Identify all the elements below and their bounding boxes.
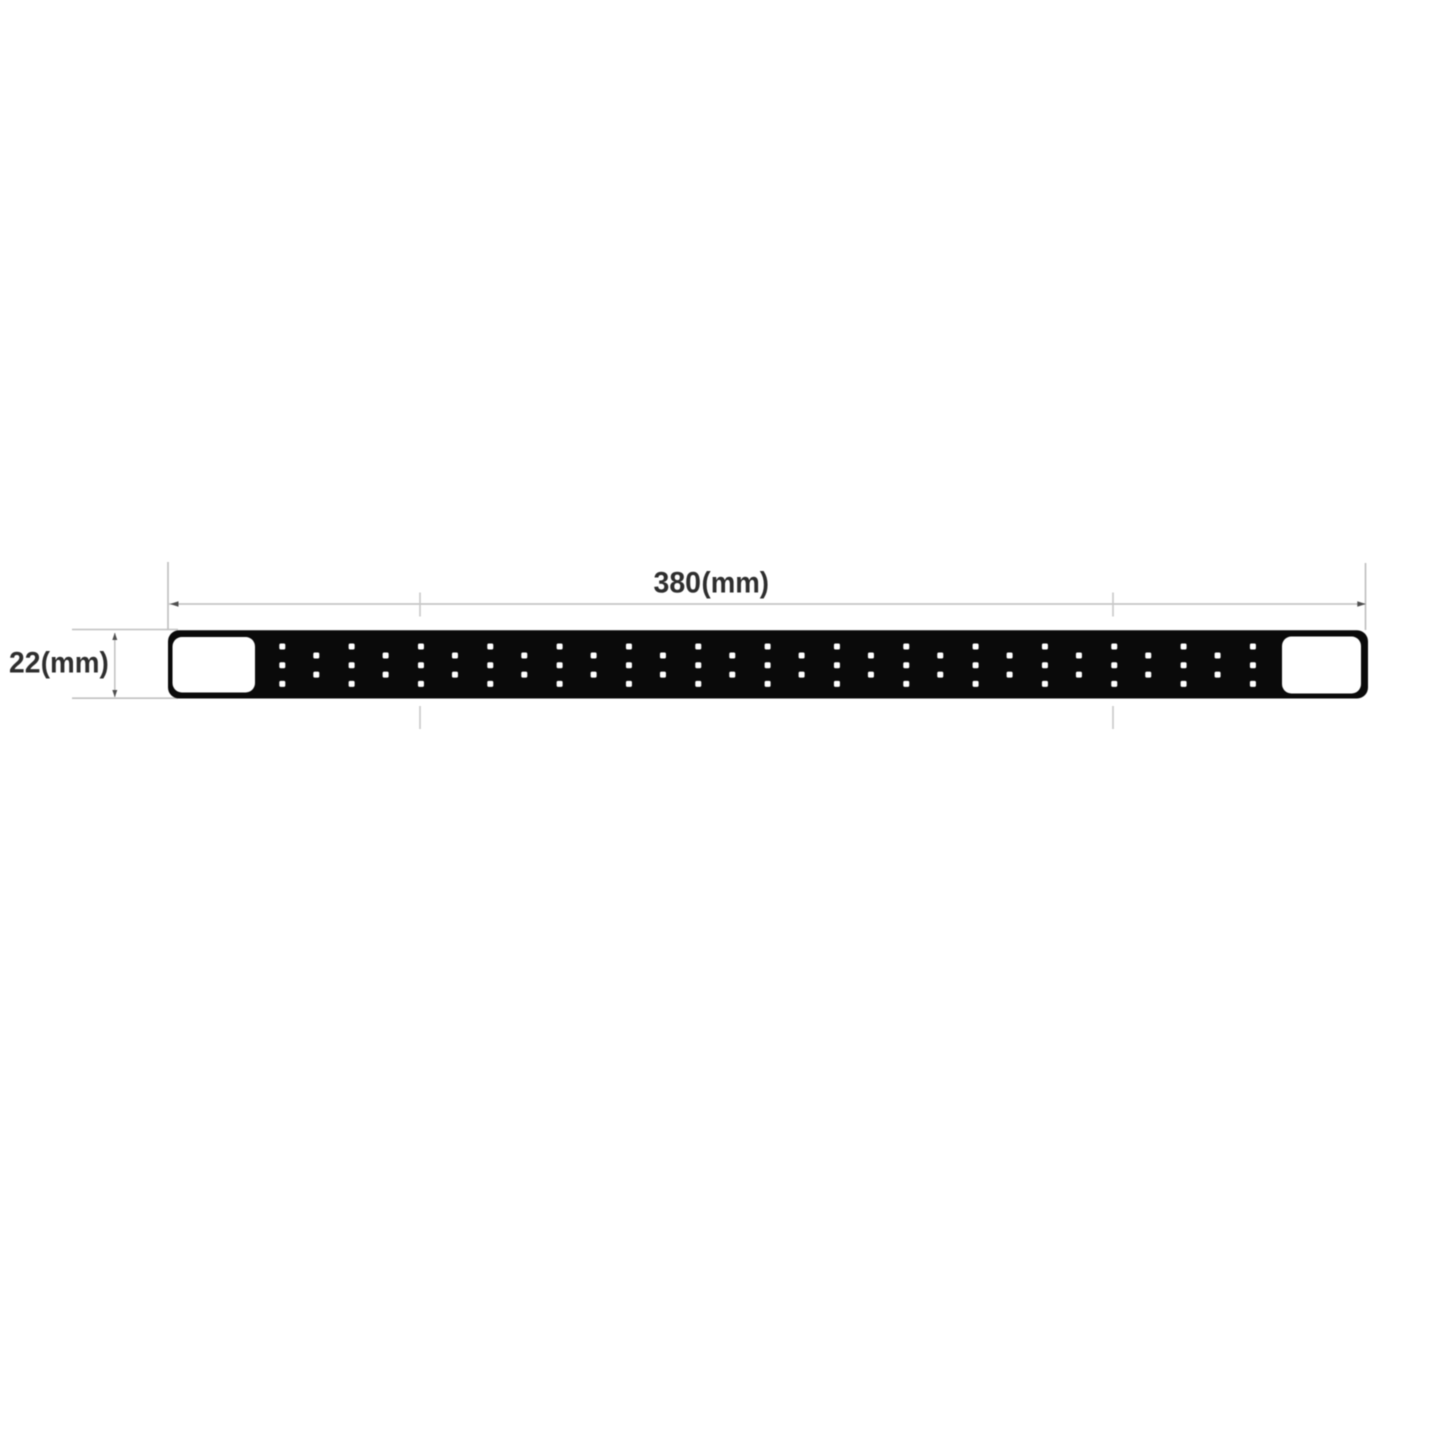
svg-text:(mm): (mm) xyxy=(702,567,770,600)
svg-text:(mm): (mm) xyxy=(41,647,109,680)
svg-text:22: 22 xyxy=(9,647,41,680)
svg-text:380: 380 xyxy=(654,567,702,600)
